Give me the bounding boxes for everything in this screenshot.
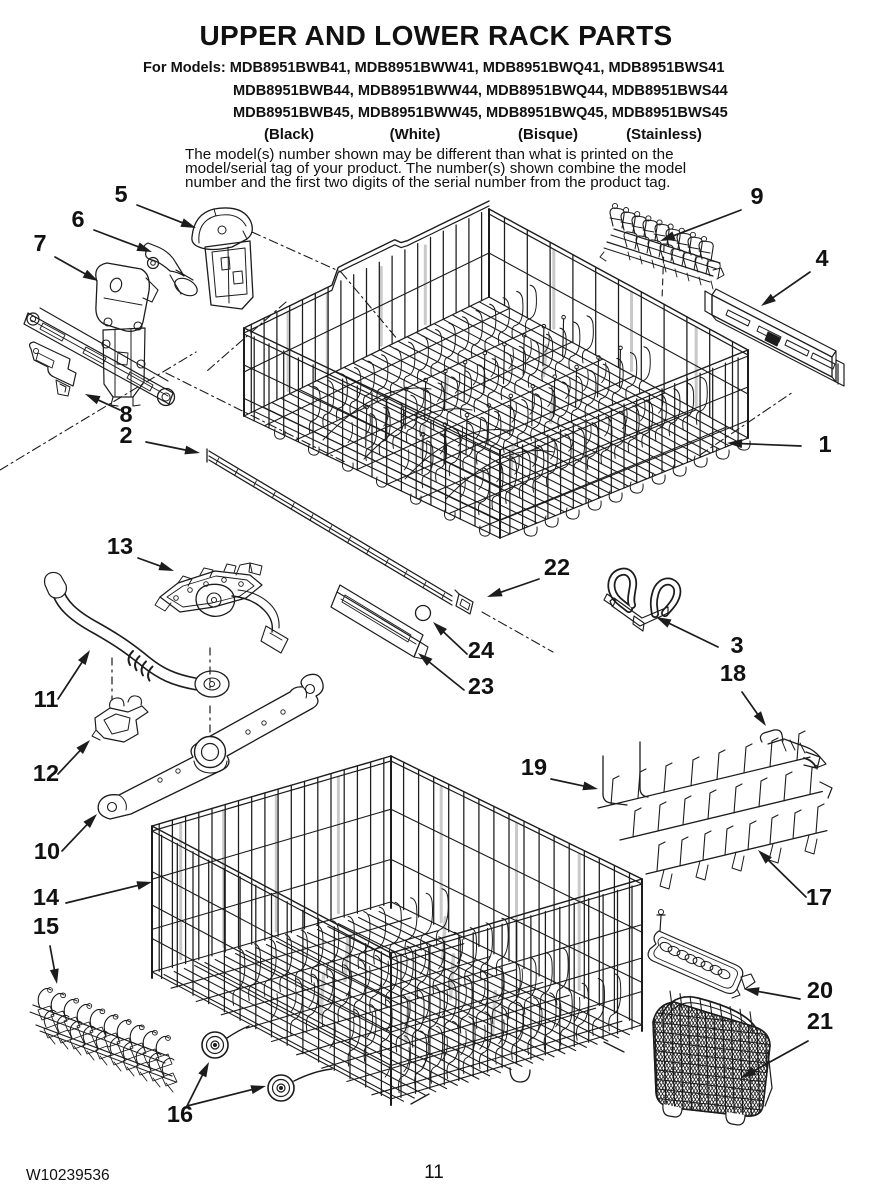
svg-text:(Stainless): (Stainless) [626, 126, 702, 143]
svg-text:13: 13 [107, 533, 133, 559]
svg-text:(Black): (Black) [264, 126, 314, 143]
svg-text:W10239536: W10239536 [26, 1167, 110, 1184]
svg-text:1: 1 [818, 431, 831, 457]
svg-text:6: 6 [71, 206, 84, 232]
svg-text:12: 12 [33, 760, 59, 786]
svg-text:MDB8951BWB44, MDB8951BWW44, MD: MDB8951BWB44, MDB8951BWW44, MDB8951BWQ44… [233, 83, 729, 99]
svg-text:21: 21 [807, 1008, 833, 1034]
svg-text:MDB8951BWB45, MDB8951BWW45, MD: MDB8951BWB45, MDB8951BWW45, MDB8951BWQ45… [233, 105, 728, 121]
svg-text:number and the first two digit: number and the first two digits of the s… [185, 174, 670, 191]
svg-text:(White): (White) [390, 126, 441, 143]
svg-text:For Models: MDB8951BWB41, MDB8: For Models: MDB8951BWB41, MDB8951BWW41, … [143, 60, 724, 76]
svg-text:15: 15 [33, 913, 59, 939]
svg-text:10: 10 [34, 838, 60, 864]
svg-text:14: 14 [33, 884, 59, 910]
svg-text:2: 2 [119, 422, 132, 448]
svg-text:9: 9 [750, 183, 763, 209]
svg-text:3: 3 [730, 632, 743, 658]
svg-text:7: 7 [33, 230, 46, 256]
svg-text:24: 24 [468, 637, 494, 663]
svg-text:11: 11 [34, 686, 59, 712]
svg-text:22: 22 [544, 554, 570, 580]
svg-text:19: 19 [521, 754, 547, 780]
svg-text:23: 23 [468, 673, 494, 699]
svg-text:5: 5 [114, 181, 127, 207]
svg-text:18: 18 [720, 660, 746, 686]
svg-text:4: 4 [815, 245, 828, 271]
svg-text:20: 20 [807, 977, 833, 1003]
svg-text:17: 17 [806, 884, 832, 910]
svg-text:UPPER AND LOWER RACK PARTS: UPPER AND LOWER RACK PARTS [200, 20, 673, 51]
svg-text:11: 11 [424, 1162, 444, 1183]
svg-text:(Bisque): (Bisque) [518, 126, 578, 143]
